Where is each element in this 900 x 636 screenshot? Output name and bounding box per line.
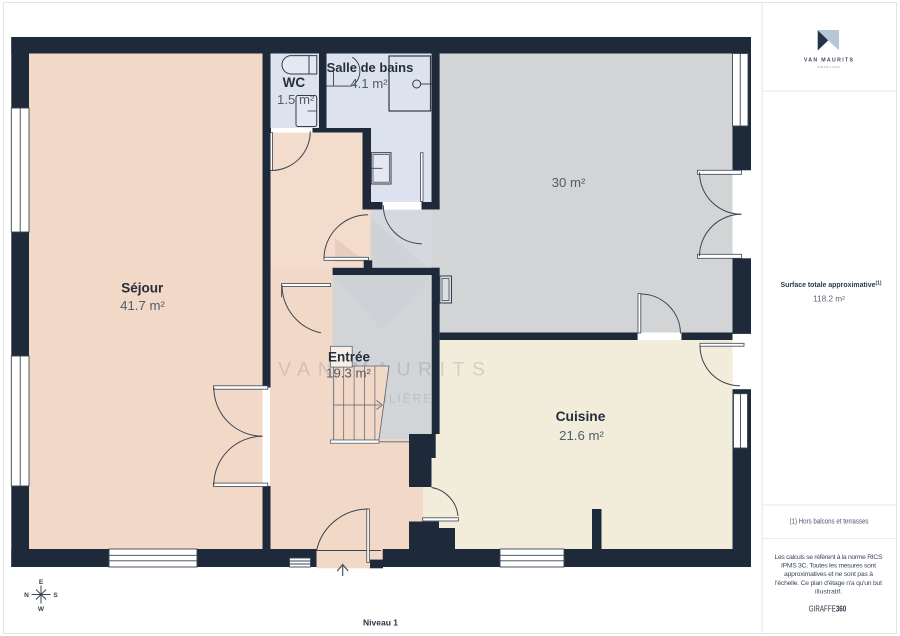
svg-text:Cuisine: Cuisine	[556, 409, 606, 424]
svg-text:WC: WC	[283, 75, 306, 90]
svg-text:21.6 m²: 21.6 m²	[559, 428, 604, 443]
svg-text:l'échelle. Ce plan d'étage n'a: l'échelle. Ce plan d'étage n'a qu'un but	[775, 580, 882, 587]
svg-text:S: S	[53, 592, 58, 599]
svg-text:GIRAFFE360: GIRAFFE360	[809, 604, 847, 614]
svg-text:118.2 m²: 118.2 m²	[813, 295, 845, 304]
svg-text:W: W	[38, 606, 45, 613]
svg-text:illustratif.: illustratif.	[815, 588, 842, 595]
svg-text:Salle de bains: Salle de bains	[327, 60, 414, 75]
svg-text:IPMS 3C. Toutes les mesures so: IPMS 3C. Toutes les mesures sont	[781, 563, 876, 570]
svg-text:19.3 m²: 19.3 m²	[326, 366, 371, 381]
svg-text:4.1 m²: 4.1 m²	[350, 76, 388, 91]
svg-text:N: N	[24, 592, 29, 599]
svg-text:1.5 m²: 1.5 m²	[277, 92, 315, 107]
svg-text:(1) Hors balcons et terrasses: (1) Hors balcons et terrasses	[790, 519, 869, 526]
svg-text:approximatives et ne sont pas: approximatives et ne sont pas à	[784, 571, 873, 578]
svg-text:Niveau 1: Niveau 1	[363, 618, 398, 628]
svg-text:Surface totale approximative(1: Surface totale approximative(1)	[780, 280, 881, 289]
svg-text:Entrée: Entrée	[328, 350, 371, 365]
svg-text:30 m²: 30 m²	[552, 175, 586, 190]
svg-text:Les calculs se réfèrent à la n: Les calculs se réfèrent à la norme RICS	[775, 554, 883, 561]
svg-text:41.7 m²: 41.7 m²	[120, 298, 165, 313]
svg-text:E: E	[39, 579, 44, 586]
svg-text:VAN MAURITS: VAN MAURITS	[804, 58, 855, 64]
svg-text:Séjour: Séjour	[121, 281, 164, 296]
